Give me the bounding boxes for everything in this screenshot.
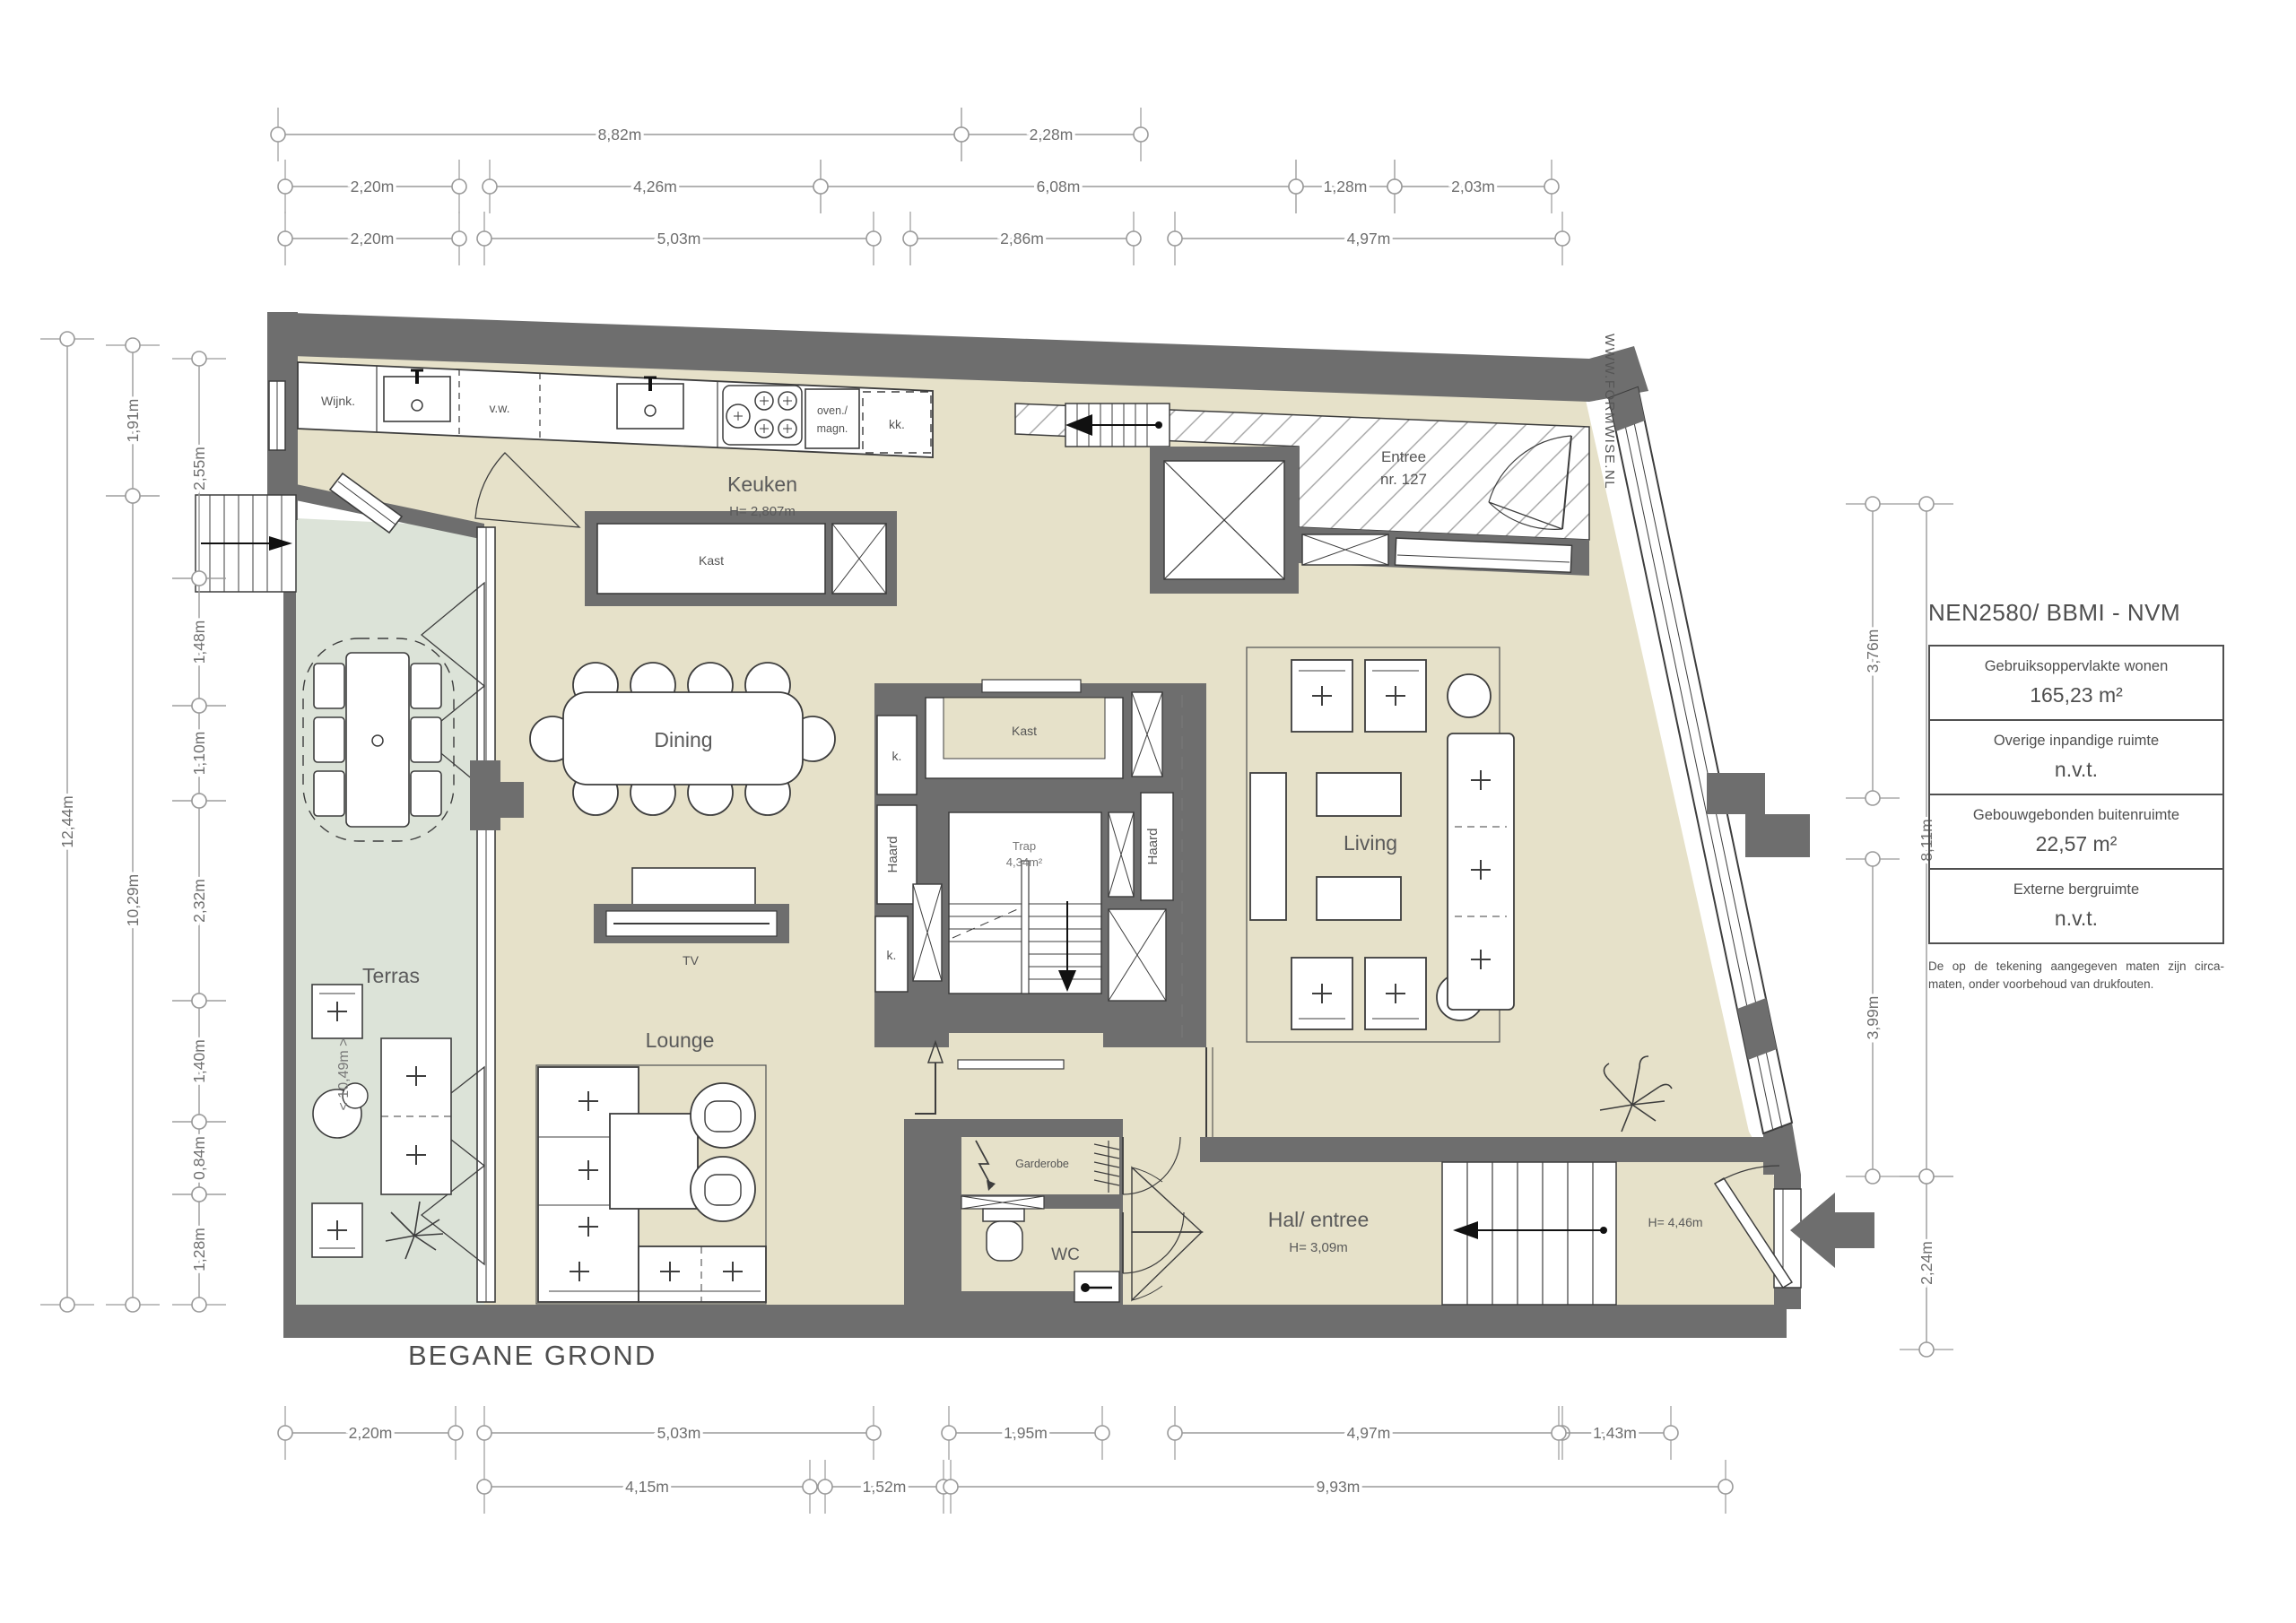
terrace-rail-wall <box>283 518 296 1307</box>
core-cabinet-label: Kast <box>1012 724 1037 738</box>
dim-label: 2,20m <box>351 230 395 247</box>
dim-node <box>192 1115 206 1129</box>
dim-label: 8,82m <box>598 126 642 143</box>
dim-node <box>1718 1480 1733 1494</box>
dim-node <box>1919 1342 1934 1357</box>
dim-label: 4,97m <box>1347 230 1391 247</box>
keuken-label: Keuken <box>727 473 797 496</box>
dim-node <box>192 1298 206 1312</box>
dim-label: 1,43m <box>1593 1424 1637 1442</box>
entree-label-line1: Entree <box>1381 448 1426 465</box>
dim-label: 1,40m <box>190 1039 208 1083</box>
fireplace-right-label: Haard <box>1145 829 1161 865</box>
hal-stairs <box>1442 1162 1616 1305</box>
dim-label: 2,20m <box>351 178 395 195</box>
dim-node <box>813 179 828 194</box>
dim-node <box>1919 1169 1934 1184</box>
dim-label: 2,32m <box>190 879 208 923</box>
upper-cabinet-unit: Kast <box>585 511 897 606</box>
sink-1 <box>384 369 450 421</box>
dim-node <box>126 338 140 352</box>
core-door-opening <box>982 680 1081 692</box>
dim-label: 1,28m <box>1324 178 1368 195</box>
table-row: Overige inpandige ruimte n.v.t. <box>1930 721 2222 795</box>
fridge-label: kk. <box>889 417 905 431</box>
entry-arrow-icon <box>1790 1193 1874 1268</box>
dim-label: 2,28m <box>1030 126 1074 143</box>
dim-label: 12,44m <box>58 795 76 847</box>
dim-node <box>1919 497 1934 511</box>
side-table <box>1448 674 1491 717</box>
row-value: n.v.t. <box>1937 907 2215 931</box>
terrace-chair <box>411 717 441 762</box>
sink-2 <box>617 377 683 429</box>
coffee-table <box>1317 877 1401 920</box>
niche-label: k. <box>887 948 897 962</box>
dim-node <box>1289 179 1303 194</box>
dim-node <box>126 489 140 503</box>
core-stairs: Trap 4,34m² <box>949 812 1101 994</box>
dim-label: 4,15m <box>625 1478 669 1496</box>
dim-node <box>1865 1169 1880 1184</box>
dining-label: Dining <box>654 728 712 751</box>
lounge-label: Lounge <box>646 1028 715 1052</box>
terrace-chair <box>314 664 344 708</box>
terras-depth-label: < 10,49m > <box>336 1038 352 1111</box>
dim-node <box>866 1426 881 1440</box>
wc-label: WC <box>1051 1245 1080 1264</box>
vent-shaft <box>1302 534 1388 565</box>
coffee-table <box>1317 773 1401 816</box>
shaft-left <box>913 884 942 981</box>
dim-node <box>192 794 206 808</box>
dim-node <box>1552 1426 1566 1440</box>
entree-label-line2: nr. 127 <box>1380 471 1427 488</box>
dim-node <box>1555 231 1570 246</box>
dim-node <box>60 332 74 346</box>
terrace-chair <box>314 771 344 816</box>
tub-chair <box>691 1157 755 1221</box>
dim-node <box>1865 497 1880 511</box>
glass-wall-mullion <box>470 760 500 830</box>
tub-chair <box>691 1083 755 1148</box>
dim-label: 3,99m <box>1864 996 1882 1040</box>
dim-node <box>126 1298 140 1312</box>
shaft-top-right <box>1132 692 1162 777</box>
dim-label: 10,29m <box>124 874 142 926</box>
dim-node <box>944 1480 958 1494</box>
dim-label: 2,86m <box>1000 230 1044 247</box>
plan-title: BEGANE GROND <box>408 1340 657 1371</box>
terrace-chair <box>411 664 441 708</box>
row-value: 165,23 m² <box>1937 683 2215 707</box>
dim-label: 4,97m <box>1347 1424 1391 1442</box>
dishwasher-label: v.w. <box>489 401 509 415</box>
dim-label: 0,84m <box>190 1136 208 1180</box>
fireplace-left-label: Haard <box>885 837 900 873</box>
hal-height-label: H= 3,09m <box>1289 1240 1347 1255</box>
disclaimer: De op de tekening aangegeven maten zijn … <box>1928 958 2224 993</box>
glass-wall-nub <box>500 782 524 818</box>
oven-label-line2: magn. <box>817 422 848 435</box>
tv-label: TV <box>683 953 700 968</box>
dim-label: 1,95m <box>1004 1424 1048 1442</box>
dim-node <box>483 179 497 194</box>
dim-node <box>192 1187 206 1202</box>
dim-node <box>954 127 969 142</box>
dim-node <box>278 1426 292 1440</box>
dim-node <box>278 231 292 246</box>
terrace-chair <box>314 717 344 762</box>
dim-label: 2,03m <box>1451 178 1495 195</box>
garderobe-label: Garderobe <box>1015 1158 1069 1170</box>
dim-node <box>1865 852 1880 866</box>
living-label: Living <box>1344 831 1397 855</box>
dim-node <box>452 179 466 194</box>
oven-microwave: oven./ magn. <box>805 389 859 448</box>
dim-node <box>942 1426 956 1440</box>
dim-node <box>278 179 292 194</box>
nen2580-table: Gebruiksoppervlakte wonen 165,23 m² Over… <box>1928 645 2224 944</box>
door-mat <box>958 1060 1064 1069</box>
dim-node <box>818 1480 832 1494</box>
dim-node <box>477 1426 491 1440</box>
bench <box>1250 773 1286 920</box>
terrace-table <box>346 653 409 827</box>
dim-node <box>192 699 206 713</box>
dim-node <box>192 571 206 586</box>
dim-label: 1,52m <box>863 1478 907 1496</box>
hal-label: Hal/ entree <box>1268 1208 1370 1231</box>
dim-label: 4,26m <box>633 178 677 195</box>
dim-label: 5,03m <box>657 1424 701 1442</box>
bottom-wall <box>283 1305 1787 1338</box>
dim-node <box>1134 127 1148 142</box>
dim-label: 9,93m <box>1317 1478 1361 1496</box>
nen2580-panel: NEN2580/ BBMI - NVM Gebruiksoppervlakte … <box>1928 599 2224 993</box>
communal-stairs <box>1065 404 1170 447</box>
wc-vent-wall <box>961 1196 1044 1209</box>
dim-node <box>1168 1426 1182 1440</box>
dim-node <box>477 231 491 246</box>
dim-label: 1,91m <box>124 399 142 443</box>
row-value: n.v.t. <box>1937 758 2215 782</box>
hal-stair-height-label: H= 4,46m <box>1648 1215 1702 1229</box>
sofa-horizontal <box>639 1246 766 1302</box>
floorplan-canvas: Entree nr. 127 Wijnk. v.w. <box>0 0 2296 1623</box>
dim-node <box>477 1480 491 1494</box>
niche-label: k. <box>892 749 902 763</box>
hal-top-wall <box>1200 1137 1774 1162</box>
cabinet-label: Kast <box>699 553 724 568</box>
table-row: Externe bergruimte n.v.t. <box>1930 870 2222 942</box>
stair-area-label: 4,34m² <box>1006 855 1043 869</box>
dim-node <box>1664 1426 1678 1440</box>
dim-label: 1,10m <box>190 732 208 776</box>
table-row: Gebruiksoppervlakte wonen 165,23 m² <box>1930 647 2222 721</box>
dim-label: 1,28m <box>190 1228 208 1271</box>
dim-node <box>803 1480 817 1494</box>
terrace-escape-stairs <box>196 495 296 592</box>
elevator-shaft <box>1150 447 1299 594</box>
facade-pier-2 <box>1737 998 1777 1060</box>
dim-node <box>1865 791 1880 805</box>
dim-node <box>1544 179 1559 194</box>
shaft-mid-right <box>1109 812 1134 897</box>
core-bottom-opening <box>949 1033 1103 1047</box>
table-row: Gebouwgebonden buitenruimte 22,57 m² <box>1930 795 2222 870</box>
left-wall-window <box>269 381 285 450</box>
stove-burners <box>723 386 802 445</box>
oven-label-line1: oven./ <box>817 404 848 417</box>
dim-label: 3,76m <box>1864 629 1882 673</box>
dim-node <box>448 1426 463 1440</box>
dim-label: 6,08m <box>1037 178 1081 195</box>
wine-cooler-label: Wijnk. <box>321 394 355 408</box>
row-label: Overige inpandige ruimte <box>1937 733 2215 750</box>
dim-label: 1,48m <box>190 621 208 664</box>
dim-node <box>1387 179 1402 194</box>
shaft-bottom-right <box>1109 909 1166 1001</box>
dim-node <box>192 994 206 1008</box>
watermark: WWW.FORMWISE.NL <box>1602 334 1617 490</box>
row-label: Gebouwgebonden buitenruimte <box>1937 807 2215 824</box>
toilet-icon <box>983 1209 1024 1261</box>
disclaimer-line1: De op de tekening aangegeven maten zijn <box>1928 959 2186 973</box>
dim-node <box>60 1298 74 1312</box>
terrace-bench <box>381 1038 451 1194</box>
fridge: kk. <box>863 392 931 453</box>
dim-node <box>866 231 881 246</box>
dim-node <box>1168 231 1182 246</box>
nen2580-title: NEN2580/ BBMI - NVM <box>1928 599 2224 627</box>
dim-label: 2,24m <box>1918 1241 1935 1285</box>
row-label: Externe bergruimte <box>1937 881 2215 898</box>
dim-label: 2,55m <box>190 447 208 490</box>
dim-node <box>1126 231 1141 246</box>
dim-node <box>271 127 285 142</box>
dim-label: 2,20m <box>349 1424 393 1442</box>
terrace-chair <box>411 771 441 816</box>
dim-node <box>1095 1426 1109 1440</box>
row-label: Gebruiksoppervlakte wonen <box>1937 658 2215 675</box>
terras-label: Terras <box>362 964 420 987</box>
keuken-height-label: H= 2,807m <box>729 504 796 519</box>
dim-label: 5,03m <box>657 230 701 247</box>
dim-node <box>903 231 918 246</box>
dim-node <box>192 352 206 366</box>
coffee-table <box>610 1114 698 1209</box>
stair-label: Trap <box>1013 839 1036 853</box>
row-value: 22,57 m² <box>1937 832 2215 856</box>
dim-node <box>452 231 466 246</box>
